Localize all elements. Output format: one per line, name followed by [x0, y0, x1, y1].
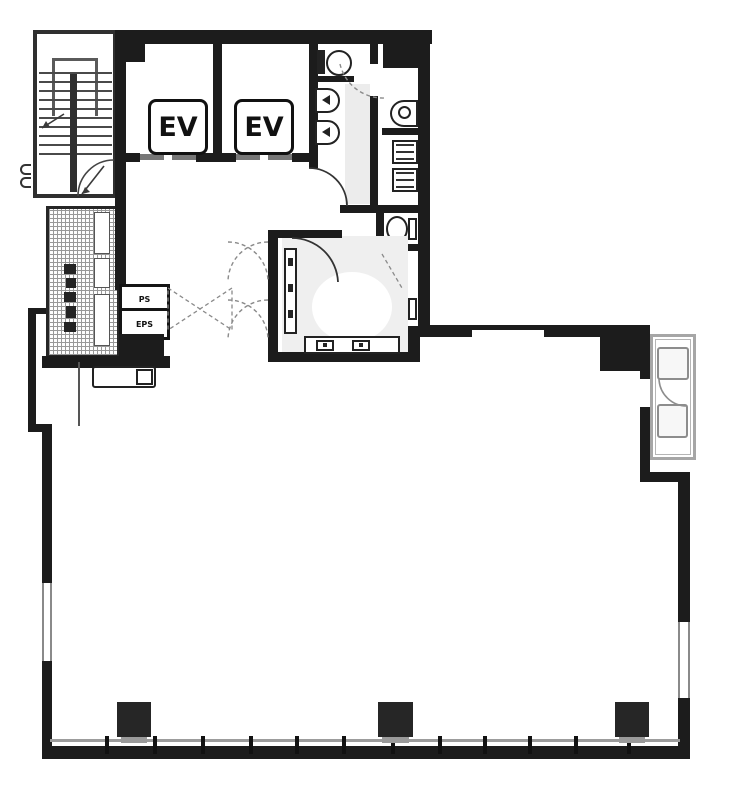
cabinet-mark [288, 258, 293, 266]
shelf-unit [392, 140, 418, 164]
hatch-mark [64, 322, 76, 332]
counter-box [136, 369, 153, 385]
mullion-tick [201, 736, 205, 754]
wall [42, 746, 690, 759]
mullion-tick [342, 736, 346, 754]
window [42, 583, 52, 661]
wall [678, 472, 690, 758]
toilet-icon [326, 50, 352, 76]
stair-exterior-door-icon [20, 164, 31, 175]
toilet-tank [408, 298, 417, 320]
urinal-drain-icon [322, 95, 330, 105]
structural-column [378, 702, 413, 737]
outdoor-unit-icon [657, 347, 689, 380]
wall [115, 44, 126, 290]
sink-drain [323, 343, 327, 347]
wall [318, 76, 354, 82]
wall [268, 230, 278, 360]
structural-column [117, 702, 151, 737]
hatch-mark [64, 292, 76, 302]
mullion-tick [483, 736, 487, 754]
wall [640, 407, 650, 475]
kitchenette-table [312, 272, 392, 342]
mullion-tick [574, 736, 578, 754]
mullion-tick [295, 736, 299, 754]
cabinet-mark [288, 284, 293, 292]
wall [370, 96, 378, 206]
cabinet-mark [288, 310, 293, 318]
outdoor-unit-icon [657, 404, 688, 438]
mullion-tick [105, 736, 109, 754]
stair-handrail [70, 74, 77, 192]
wall [213, 44, 222, 158]
elevator-label: EV [244, 112, 283, 143]
shelf-unit [392, 168, 418, 192]
duct-slot [94, 212, 110, 254]
wall [292, 153, 309, 162]
wall [383, 44, 418, 68]
elevator-label: EV [158, 112, 197, 143]
shelf-lines [396, 172, 414, 188]
wall [268, 230, 342, 238]
column-base [382, 737, 409, 743]
electric-pipe-shaft-label: EPS [136, 320, 153, 329]
window [472, 330, 544, 337]
duct-slot [94, 258, 110, 288]
wall [418, 44, 430, 332]
partition-line [78, 362, 80, 426]
column-base [121, 737, 147, 743]
hatch-mark [64, 264, 76, 274]
hatch-mark [66, 278, 76, 288]
pipe-shaft-label: PS [139, 295, 151, 304]
wall [126, 153, 140, 162]
hatch-mark [66, 306, 76, 318]
door-swing-dashed [228, 300, 268, 340]
wall [600, 325, 650, 371]
structural-column [615, 702, 649, 737]
washbasin-bowl [398, 106, 411, 119]
door-leaf-dashed [200, 288, 232, 330]
toilet-tank [408, 218, 417, 240]
duct-slot [94, 294, 110, 346]
mullion-tick [438, 736, 442, 754]
mullion-tick [528, 736, 532, 754]
shelf-lines [396, 144, 414, 160]
sink-drain [359, 343, 363, 347]
wall [115, 30, 432, 44]
door-swing [309, 168, 347, 206]
wall [640, 371, 650, 379]
window [678, 622, 690, 698]
door-swing-dashed [228, 242, 268, 282]
door-swing-dashed [228, 300, 268, 340]
toilet-tank [317, 50, 325, 74]
door-swing-dashed [228, 242, 268, 282]
elevator-shaft-2: EV [234, 99, 294, 155]
door-leaf-dashed [168, 288, 200, 330]
mullion-tick [153, 736, 157, 754]
stair-exterior-door-icon [20, 177, 31, 188]
floor-plan: EV EV PS EPS [0, 0, 729, 787]
wall [370, 44, 378, 64]
wall [382, 128, 418, 135]
urinal-drain-icon [322, 127, 330, 137]
restroom-floor [345, 84, 370, 204]
elevator-shaft-1: EV [148, 99, 208, 155]
column-base [619, 737, 645, 743]
mullion-tick [249, 736, 253, 754]
wall [28, 308, 36, 430]
